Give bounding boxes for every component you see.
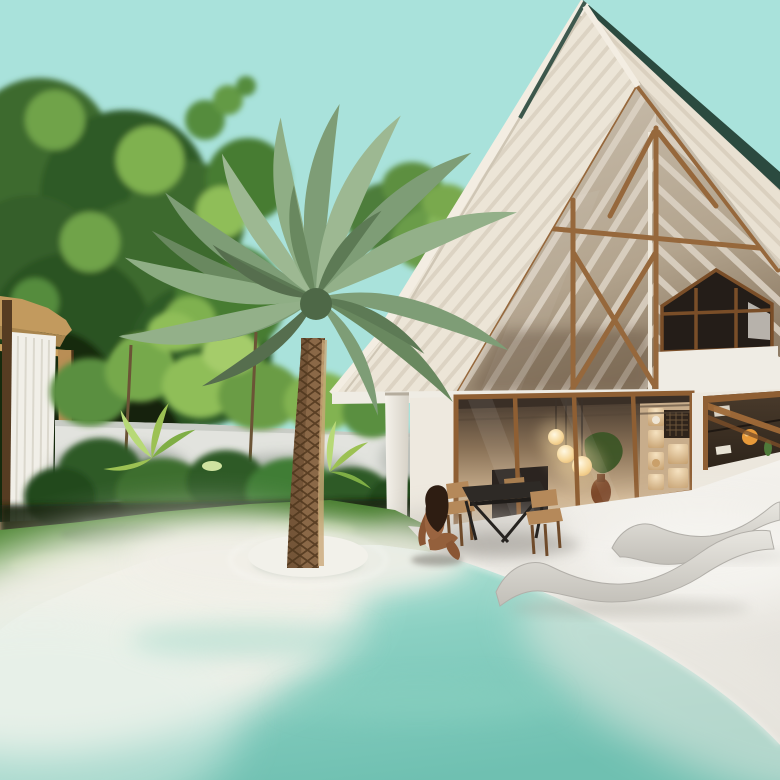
scene-canvas: Tropical villa render with A-frame roof,… bbox=[0, 0, 780, 780]
porch-column bbox=[385, 392, 409, 524]
grille-cabinet bbox=[664, 410, 690, 438]
villa-render: Tropical villa render with A-frame roof,… bbox=[0, 0, 780, 780]
